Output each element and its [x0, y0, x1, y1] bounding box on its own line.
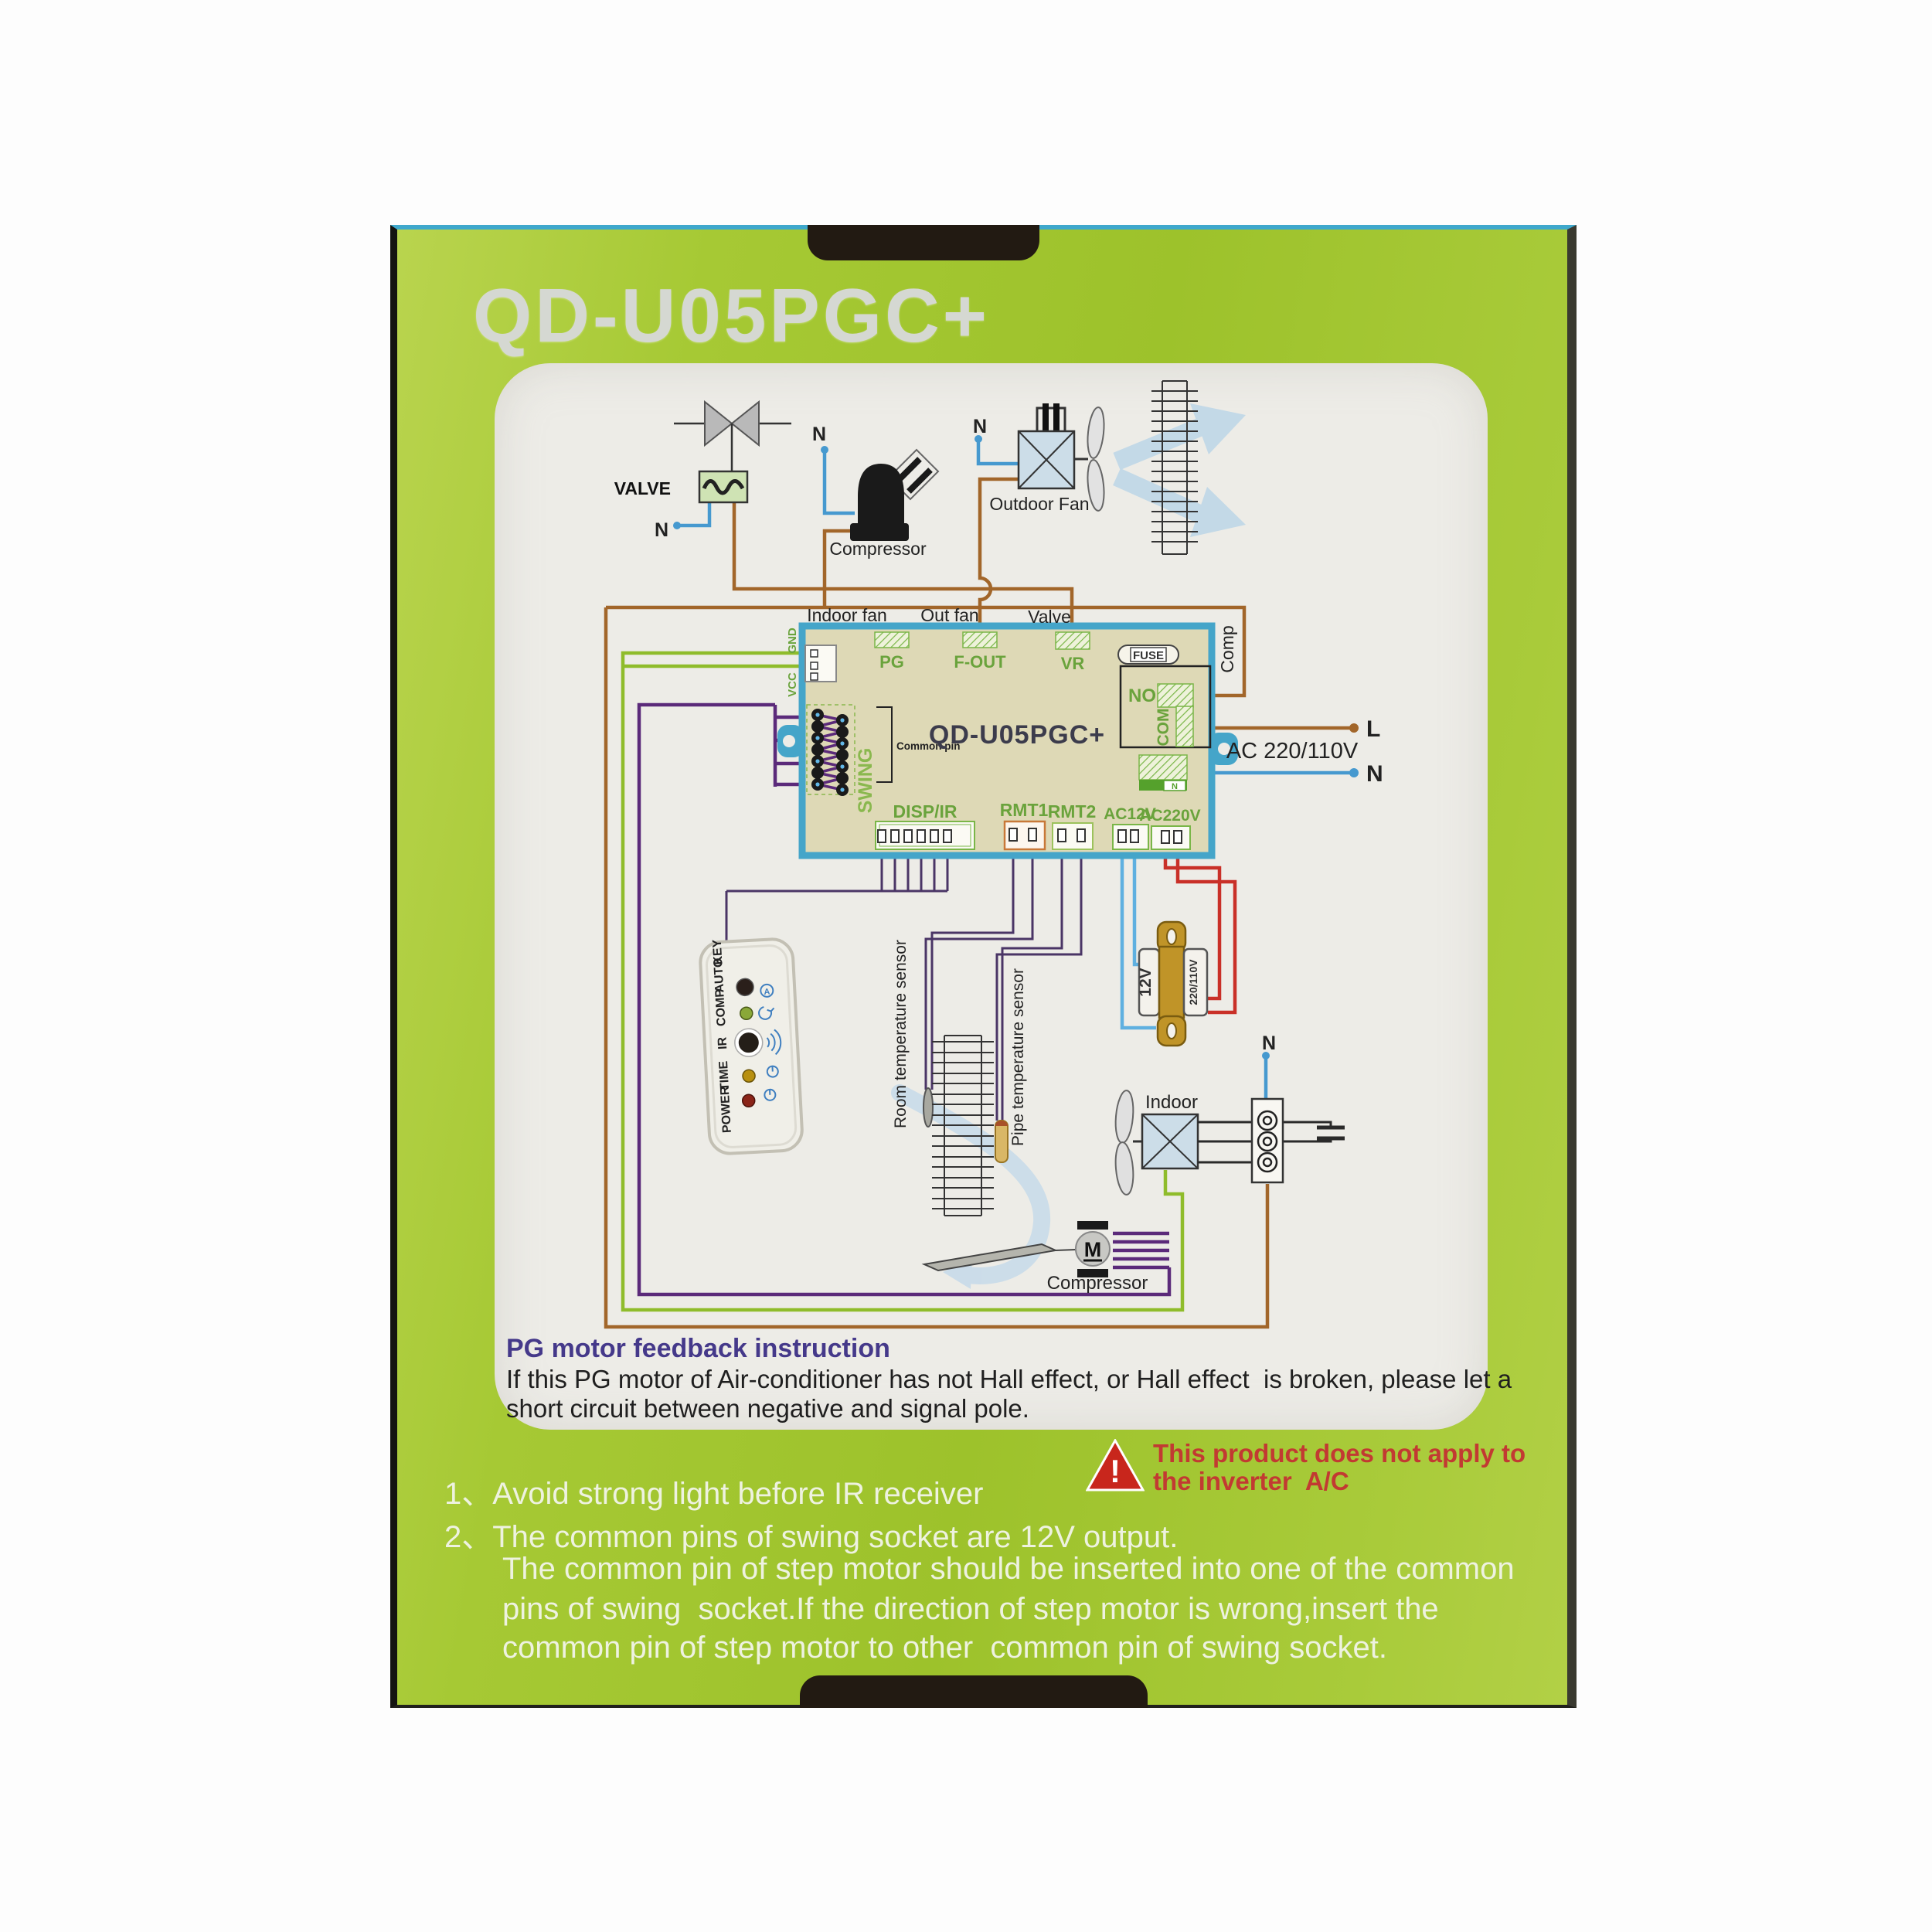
wire-stepmotor-leads — [1113, 1233, 1169, 1267]
indoor-compressor-label: Compressor — [1047, 1273, 1148, 1294]
swing-label: SWING — [855, 748, 876, 814]
fan-blade-icon — [1114, 1141, 1135, 1196]
comp-led-label: COMP — [713, 988, 729, 1026]
pipe-sensor-label: Pipe temperature sensor — [1009, 968, 1027, 1146]
warning-triangle-icon: ! — [1086, 1439, 1145, 1492]
ac220v-connector — [1151, 826, 1190, 849]
warning-line1: This product does not apply to — [1153, 1439, 1526, 1468]
instruction-heading: PG motor feedback instruction — [506, 1334, 890, 1364]
ir-label: IR — [716, 1036, 730, 1049]
pg-label: PG — [879, 652, 904, 672]
indoor-neutral-label: N — [1262, 1032, 1276, 1054]
ac-inlet-connector — [1139, 755, 1187, 780]
reversing-valve: VALVE N — [614, 402, 791, 541]
room-sensor — [923, 1088, 933, 1127]
ir-receiver — [736, 1030, 761, 1055]
outdoor-fan-neutral-label: N — [973, 416, 987, 437]
dispir-label: DISP/IR — [893, 801, 957, 821]
time-led-label: TIME — [717, 1060, 732, 1090]
note-1-text: Avoid strong light before IR receiver — [492, 1477, 983, 1511]
note-1: 1、Avoid strong light before IR receiver — [444, 1468, 983, 1513]
fan-blade-icon — [1114, 1090, 1135, 1144]
board-name: QD-U05PGC+ — [929, 720, 1105, 750]
instruction-line2: short circuit between negative and signa… — [506, 1394, 1029, 1423]
warning-mark: ! — [1110, 1453, 1121, 1489]
note-1-number: 1、 — [444, 1477, 492, 1511]
indoor-fan-tag: Indoor fan — [807, 605, 887, 625]
auto-key-button — [736, 978, 753, 996]
fuse-label: FUSE — [1133, 649, 1164, 662]
note-2-line2: The common pin of step motor should be i… — [502, 1552, 1515, 1587]
fan-blade-icon — [1086, 406, 1107, 459]
pipe-sensor — [995, 1121, 1008, 1162]
wire-valve-n — [680, 502, 709, 526]
wire-compressor-n — [825, 451, 855, 513]
indoor-fan: Indoor — [1114, 1090, 1198, 1196]
outdoor-fan-label: Outdoor Fan — [989, 494, 1089, 514]
no-connector — [1158, 684, 1193, 707]
fout-connector — [963, 632, 997, 648]
vr-connector — [1056, 632, 1090, 649]
capacitor-icon — [1037, 408, 1065, 431]
box-handle-bottom — [800, 1675, 1148, 1708]
compressor-neutral-label: N — [812, 423, 826, 445]
step-motor: M — [1076, 1221, 1110, 1277]
vcc-label: VCC — [786, 672, 799, 697]
fout-label: F-OUT — [954, 652, 1006, 672]
motor-letter: M — [1084, 1238, 1102, 1261]
key-label: KEY — [711, 939, 726, 965]
transformer-220v-label: 220/110V — [1187, 959, 1199, 1005]
inlet-n-label: N — [1172, 782, 1178, 791]
outdoor-fan: N Outdoor Fan — [973, 403, 1106, 514]
ac220v-label: AC220V — [1139, 807, 1200, 825]
control-board: PG F-OUT VR FUSE NO COM N GND VCC — [777, 626, 1238, 855]
note-2-number: 2、 — [444, 1520, 492, 1554]
vcc-gnd-connector — [805, 645, 836, 682]
wire-ac12v-b — [1134, 848, 1139, 964]
room-sensor-label: Room temperature sensor — [892, 940, 910, 1128]
packaging-photo: QD-U05PGC+ — [0, 0, 1932, 1932]
note-2-text: The common pins of swing socket are 12V … — [492, 1520, 1178, 1554]
note-2-line4: common pin of step motor to other common… — [502, 1631, 1387, 1665]
comp-led — [740, 1007, 753, 1020]
display-board: POWER TIME IR COMP AUTO KEY A — [699, 935, 803, 1155]
vr-label: VR — [1061, 654, 1085, 673]
rmt1-label: RMT1 — [1000, 800, 1049, 820]
time-led — [743, 1070, 756, 1083]
outdoor-compressor: N Compressor — [812, 423, 938, 559]
valve-tag: Valve — [1028, 607, 1071, 627]
no-label: NO — [1128, 685, 1156, 706]
condenser-coil — [1151, 381, 1198, 554]
warning-line2: the inverter A/C — [1153, 1467, 1349, 1496]
gnd-label: GND — [786, 628, 799, 654]
valve-neutral-label: N — [655, 519, 668, 541]
wire-outfan-n — [978, 442, 1019, 464]
com-label: COM — [1155, 709, 1172, 747]
condenser-airflow-arrows — [1117, 403, 1246, 537]
line-label: L — [1366, 716, 1380, 742]
indoor-label: Indoor — [1145, 1092, 1198, 1113]
ac-voltage-label: AC 220/110V — [1226, 739, 1359, 764]
valve-label: VALVE — [614, 478, 671, 498]
transformer-12v-label: 12V — [1137, 968, 1155, 996]
neutral-label: N — [1366, 761, 1383, 787]
instruction-line1: If this PG motor of Air-conditioner has … — [506, 1365, 1512, 1394]
com-connector — [1176, 706, 1193, 747]
note-2: 2、The common pins of swing socket are 12… — [444, 1512, 1178, 1556]
power-led — [742, 1094, 755, 1107]
rmt2-label: RMT2 — [1048, 801, 1097, 821]
auto-icon-letter: A — [764, 988, 770, 997]
note-2-line3: pins of swing socket.If the direction of… — [502, 1592, 1439, 1627]
outdoor-compressor-label: Compressor — [829, 539, 927, 559]
power-led-label: POWER — [719, 1086, 734, 1134]
pg-connector — [875, 632, 909, 648]
comp-tag: Comp — [1217, 625, 1237, 672]
evaporator-coil — [932, 1036, 994, 1216]
terminal-strip — [1252, 1099, 1283, 1182]
out-fan-tag: Out fan — [920, 605, 978, 625]
